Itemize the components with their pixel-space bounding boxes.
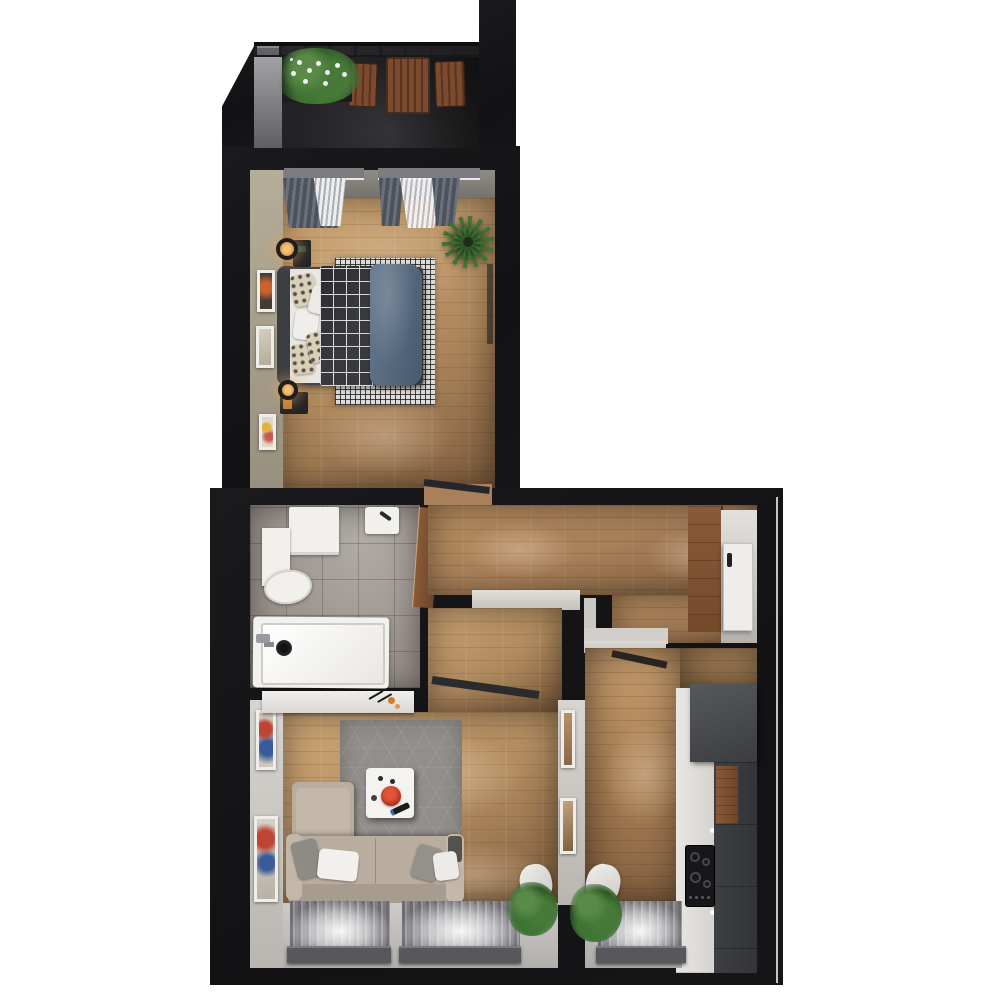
living-right-wall-face: [558, 700, 585, 905]
living-extension-floor: [428, 608, 562, 712]
console-decor-orange: [388, 697, 395, 704]
bed-frame: [283, 267, 423, 385]
sofa-pillow-gray-2: [410, 843, 444, 883]
wall-art-5: [254, 816, 278, 902]
sofa-seat-seam: [375, 838, 376, 884]
sofa-main: [288, 836, 462, 904]
table-lamp-bottom: [278, 380, 298, 400]
coffee-table: [366, 768, 414, 818]
nightstand-candle: [283, 396, 292, 409]
bedroom-floor: [283, 198, 495, 488]
planter-flowers: [290, 58, 293, 61]
living-window-sill-right: [399, 946, 521, 963]
wall-art-1: [257, 270, 275, 312]
table-knob-1: [378, 776, 383, 781]
kitchen-window: [598, 901, 682, 951]
wall-art-4: [256, 710, 276, 770]
hallway-wardrobe: [688, 506, 723, 632]
bathtub-drain: [276, 640, 292, 656]
room-bedroom: [0, 0, 1000, 1000]
checkered-rug: [335, 258, 435, 405]
balcony-floor: [282, 44, 479, 148]
hallway-floor-lower: [612, 595, 757, 643]
sheer-curtain-right-window: [398, 178, 442, 228]
wall-art-2: [256, 326, 274, 368]
bed-sheet: [290, 269, 330, 383]
kitchen-window-sill: [596, 946, 686, 963]
bathroom-door-leaf: [412, 507, 440, 608]
planter-foliage: [276, 48, 360, 104]
curtain-dark-right-window-b: [432, 178, 460, 226]
balcony-wall-face: [254, 48, 282, 148]
sofa-pillow-gray-1: [290, 837, 324, 880]
sofa-chaise: [292, 782, 354, 854]
chair-slats: [348, 63, 378, 108]
hallway-corner-face-h: [584, 628, 668, 644]
wall-balcony-left: [222, 46, 254, 150]
kitchen-plant-pot: [582, 861, 624, 907]
nightstand-bottom: [280, 392, 308, 414]
sheer-curtain-left-window: [312, 178, 346, 226]
flower-planter-box: [282, 56, 352, 102]
bedroom-door-leaf: [424, 479, 490, 494]
bed-pillow-1: [289, 272, 318, 308]
sofa-chaise-cushion: [296, 788, 350, 848]
bed-pillow-2: [292, 308, 320, 341]
kitchen-upper-dark-cabinet: [690, 684, 757, 762]
kitchen-light-pool: [600, 720, 690, 830]
cooktop-burner-4: [703, 880, 711, 888]
wall-sink: [365, 507, 399, 534]
console-shelf: [262, 691, 414, 713]
bedroom-light-pool-2: [310, 390, 460, 480]
entrance-door: [723, 543, 753, 631]
curtain-pelmet-right: [378, 168, 480, 180]
curtain-dark-right-window-a: [379, 178, 403, 226]
wall-top-right-column: [479, 0, 516, 175]
floor-plan-canvas: [0, 0, 1000, 1000]
sofa-throw-blanket: [448, 836, 462, 862]
living-door-leaf: [431, 676, 539, 699]
doorway-sill-living-room: [472, 590, 580, 610]
art-canvas: [259, 713, 273, 767]
bedroom-door-opening: [424, 484, 492, 505]
bed-headboard: [277, 266, 293, 385]
hallway-light-pool-2: [640, 525, 750, 585]
balcony-shadow: [282, 44, 479, 148]
living-light-pool-1: [370, 730, 530, 820]
bedroom-plant-leaves: [442, 216, 494, 268]
art-canvas: [259, 329, 271, 365]
bathtub-faucet: [256, 634, 270, 643]
wall-art-7: [560, 798, 576, 854]
hex-pattern-rug: [340, 720, 462, 908]
doorway-sill-kitchen: [584, 641, 666, 653]
art-canvas: [564, 713, 572, 765]
sink-faucet: [379, 511, 392, 522]
outdoor-table: [386, 57, 430, 114]
wall-block-bedroom: [222, 146, 520, 505]
outer-edge-highlight: [776, 497, 778, 983]
sofa-armrest-left: [286, 834, 302, 900]
cistern-cabinet: [262, 528, 290, 586]
chair-slats: [434, 60, 466, 107]
living-window-left: [290, 901, 390, 951]
kitchen-wood-cabinet-front: [716, 766, 738, 824]
bedroom-plant-pot: [463, 237, 473, 247]
plaid-blanket: [320, 266, 374, 386]
kitchen-door-leaf: [611, 650, 667, 668]
sofa-pillow-white-1: [317, 848, 360, 882]
hallway-light-pool-1: [460, 520, 580, 580]
kitchen-plant-leaves: [570, 884, 622, 942]
sofa-pillow-white-2: [432, 850, 460, 881]
kitchen-floor-upper: [680, 648, 757, 688]
wall-art-6: [561, 710, 575, 768]
room-balcony: [0, 0, 1000, 1000]
outdoor-chair-right: [434, 60, 466, 107]
bed-pillow-5: [305, 330, 333, 364]
bedroom-light-pool: [300, 210, 470, 330]
nightstand-top: [293, 240, 311, 267]
hallway-corner-face-v: [584, 598, 596, 646]
bedroom-left-wall-face: [250, 170, 283, 488]
art-canvas: [262, 417, 273, 447]
curtain-dark-left-window: [283, 178, 345, 228]
living-light-pool-2: [400, 840, 550, 910]
table-lamp-top: [276, 238, 298, 260]
living-plant-pot: [517, 862, 555, 905]
red-bowl: [381, 786, 401, 806]
bed-pillow-4: [307, 284, 333, 316]
entrance-door-handle: [727, 553, 732, 567]
curtain-pelmet-left: [284, 168, 364, 180]
wall-block-lower: [210, 488, 783, 985]
living-plant-leaves: [508, 882, 558, 936]
living-left-wall-face: [250, 700, 283, 968]
living-window-sill-left: [287, 946, 391, 963]
art-canvas: [563, 801, 573, 851]
living-floor: [283, 712, 558, 905]
washing-machine: [289, 507, 339, 555]
blue-duvet: [370, 264, 422, 386]
hallway-floor-upper: [428, 505, 757, 595]
bathroom-floor: [250, 505, 420, 688]
wall-art-3: [259, 414, 276, 450]
kitchen-cabinet-knobs: [710, 828, 715, 833]
console-decor-black: [369, 690, 384, 700]
table-knob-3: [371, 795, 377, 801]
toilet: [262, 567, 314, 607]
table-knob-2: [390, 779, 395, 784]
bedroom-right-wall-shadow: [487, 264, 493, 344]
room-hallway: [0, 0, 1000, 1000]
kitchen-window-wall: [585, 903, 682, 968]
room-bathroom: [0, 0, 1000, 1000]
outdoor-chair-left: [348, 63, 378, 108]
cooktop-knobs: [689, 896, 692, 899]
living-window-right: [402, 901, 520, 951]
balcony-railing: [254, 42, 479, 57]
living-window-wall: [283, 903, 558, 968]
art-canvas: [257, 819, 275, 899]
art-canvas: [260, 273, 272, 309]
cooktop-burner-2: [702, 858, 710, 866]
kitchen-white-cabinet-run: [676, 688, 716, 973]
entry-floor: [721, 510, 757, 643]
sofa-armrest-right: [446, 834, 464, 902]
room-living: [0, 0, 1000, 1000]
cooktop-burner-3: [690, 872, 701, 883]
remote-control: [390, 802, 411, 816]
bathtub: [253, 616, 390, 688]
cooktop-burner-1: [690, 852, 700, 862]
walls-layer: [0, 0, 1000, 1000]
bedroom-plant-leaves-inner: [446, 222, 487, 263]
bed-pillow-3: [290, 343, 315, 375]
bathtub-rim: [261, 623, 385, 685]
cooktop: [686, 846, 714, 906]
nightstand-top-book: [296, 246, 306, 252]
sofa-backrest: [288, 884, 462, 904]
bedroom-top-wall-face: [283, 170, 495, 204]
kitchen-tall-dark-cabinet: [714, 762, 757, 973]
room-kitchen: [0, 0, 1000, 1000]
kitchen-floor: [585, 648, 680, 905]
